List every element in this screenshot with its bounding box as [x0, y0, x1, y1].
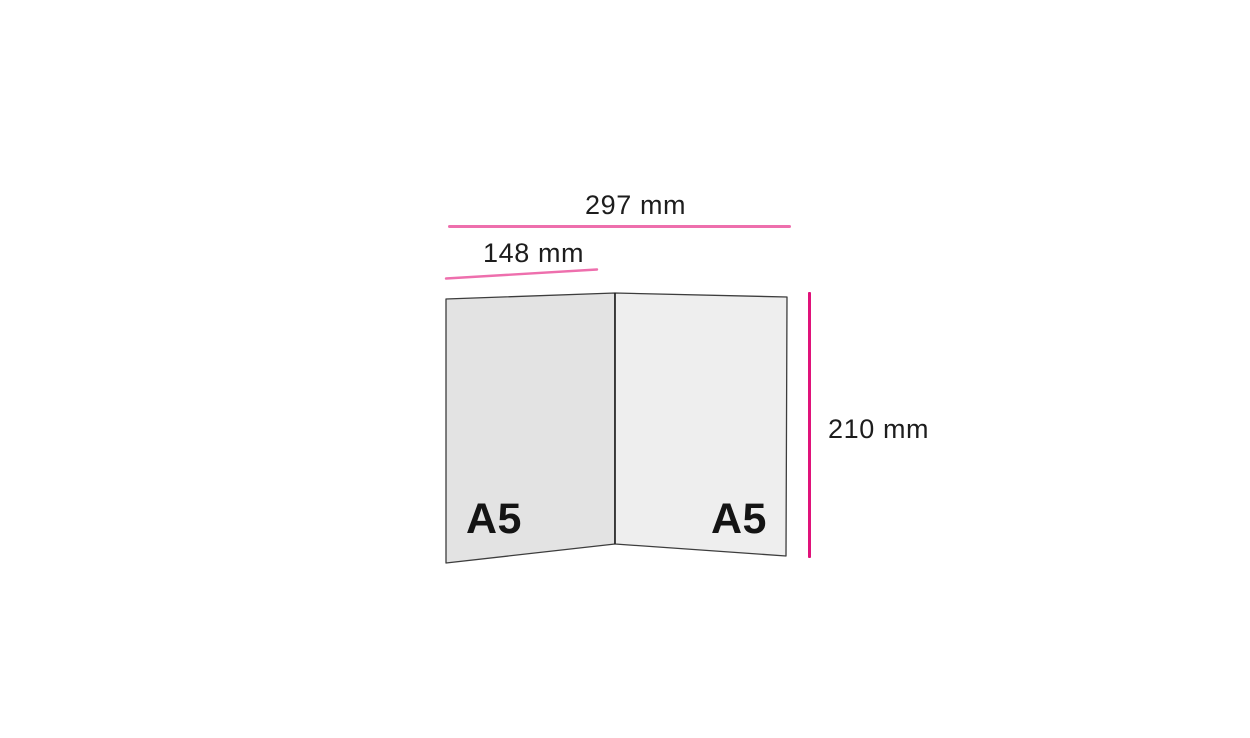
panel-format-label-right: A5 [711, 498, 767, 541]
fold-diagram-canvas: 297 mm 148 mm A5 A5 210 mm [0, 0, 1250, 738]
dimension-label-height: 210 mm [828, 416, 929, 443]
dimension-line-half-width [446, 270, 597, 279]
folded-sheet-drawing [0, 0, 1250, 738]
panel-format-label-left: A5 [466, 498, 522, 541]
dimension-line-height [808, 292, 811, 558]
